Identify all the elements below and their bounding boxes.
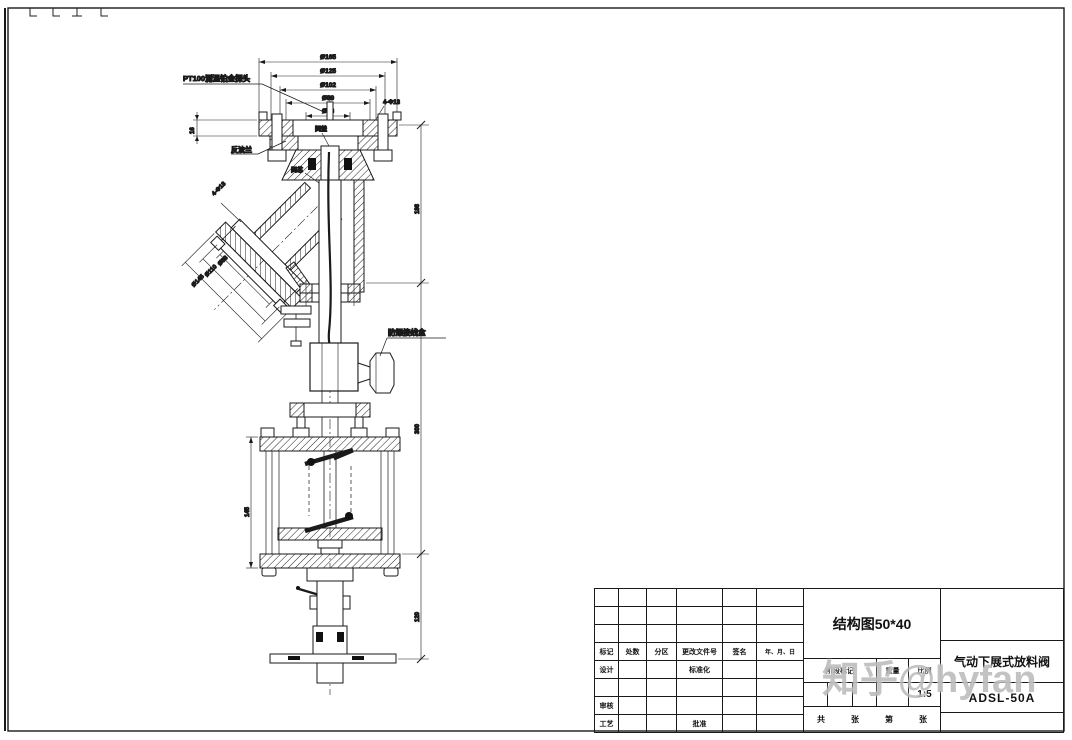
blank-cell	[723, 715, 757, 733]
dim-right-upper: 186	[415, 203, 421, 214]
junction-box-label: 防爆接线盒	[388, 327, 426, 337]
lower-stem	[270, 568, 396, 683]
sheet-total-label: 共	[817, 714, 825, 725]
dim-right-lower: 120	[415, 611, 421, 622]
valve-core-label: 阀芯	[291, 166, 303, 174]
blank-cell	[677, 679, 723, 697]
rev-header-signature: 签名	[723, 643, 757, 661]
sensor-bracket	[281, 306, 311, 346]
flange-thickness-dim	[193, 112, 257, 144]
valve-section-view: Ø165 Ø125 Ø102 Ø89 Ø48 4-Φ18 PT100测温铂金探头	[176, 54, 446, 695]
pt100-label-leader	[183, 84, 324, 112]
blank-cell	[757, 679, 804, 697]
actuator-cylinder	[260, 428, 400, 576]
blank-cell	[647, 607, 677, 625]
blank-cell	[723, 607, 757, 625]
dim-flange-thickness: 16	[190, 127, 196, 134]
dim-branch-1: Ø88	[217, 255, 230, 268]
blank-cell	[647, 679, 677, 697]
rev-header-docno: 更改文件号	[677, 643, 723, 661]
blank-cell	[723, 661, 757, 679]
blank-cell	[757, 697, 804, 715]
blank-cell	[757, 715, 804, 733]
sheet-unit2-label: 张	[919, 714, 927, 725]
rev-header-date: 年、月、日	[757, 643, 804, 661]
role-design: 设计	[595, 661, 619, 679]
blank-cell	[619, 625, 647, 643]
role-review: 审核	[595, 697, 619, 715]
pt100-probe-label: PT100测温铂金探头	[183, 73, 251, 83]
dim-right-middle: 300	[415, 423, 421, 434]
counter-flange-label: 反法兰	[231, 145, 252, 154]
blank-cell	[647, 661, 677, 679]
blank-cell	[595, 679, 619, 697]
blank-cell	[757, 661, 804, 679]
blank-cell	[677, 697, 723, 715]
blank-cell	[619, 607, 647, 625]
dim-top-1: Ø165	[320, 54, 336, 61]
blank-cell	[647, 625, 677, 643]
blank-cell	[647, 715, 677, 733]
return-spring	[305, 450, 353, 531]
dim-top-bolt-holes: 4-Φ18	[383, 100, 401, 106]
blank-cell	[757, 607, 804, 625]
junction-box	[310, 343, 394, 393]
blank-cell	[757, 589, 804, 607]
dim-top-4: Ø89	[322, 95, 335, 102]
sheet-no-label: 第	[885, 714, 893, 725]
dim-branch-2: Ø110	[204, 264, 219, 279]
sheet-fold-marks	[30, 8, 108, 16]
dim-top-2: Ø125	[320, 68, 336, 75]
blank-cell	[595, 625, 619, 643]
watermark-text: 知乎@hyfan	[822, 648, 1072, 703]
sheet-unit-label: 张	[851, 714, 859, 725]
blank-cell	[677, 589, 723, 607]
rev-header-mark: 标记	[595, 643, 619, 661]
bonnet-label: 阀盖	[315, 125, 327, 133]
blank-cell	[677, 625, 723, 643]
blank-cell	[677, 607, 723, 625]
blank-cell	[595, 607, 619, 625]
rev-header-count: 处数	[619, 643, 647, 661]
rev-header-zone: 分区	[647, 643, 677, 661]
dim-branch-holes: 4-Φ18	[211, 181, 228, 198]
title-block-revision-table: 标记 处数 分区 更改文件号 签名 年、月、日 设计 标准化 审核 工艺 批准	[594, 588, 804, 733]
blank-cell	[647, 697, 677, 715]
dim-cylinder-height: 145	[245, 506, 251, 517]
blank-cell	[723, 589, 757, 607]
role-approve: 批准	[677, 715, 723, 733]
piston	[278, 528, 382, 540]
role-standardization: 标准化	[677, 661, 723, 679]
blank-cell	[619, 679, 647, 697]
blank-cell	[595, 589, 619, 607]
blank-cell	[757, 625, 804, 643]
blank-cell	[619, 661, 647, 679]
sheet-count-cell: 共 张 第 张	[804, 707, 941, 733]
blank-cell	[941, 589, 1064, 641]
blank-cell	[619, 697, 647, 715]
blank-cell	[723, 625, 757, 643]
blank-cell	[723, 679, 757, 697]
dim-top-3: Ø102	[320, 82, 336, 89]
role-process: 工艺	[595, 715, 619, 733]
blank-cell	[723, 697, 757, 715]
blank-cell	[619, 715, 647, 733]
blank-cell	[619, 589, 647, 607]
blank-cell	[941, 713, 1064, 733]
blank-cell	[647, 589, 677, 607]
cylinder-dim	[246, 437, 258, 568]
